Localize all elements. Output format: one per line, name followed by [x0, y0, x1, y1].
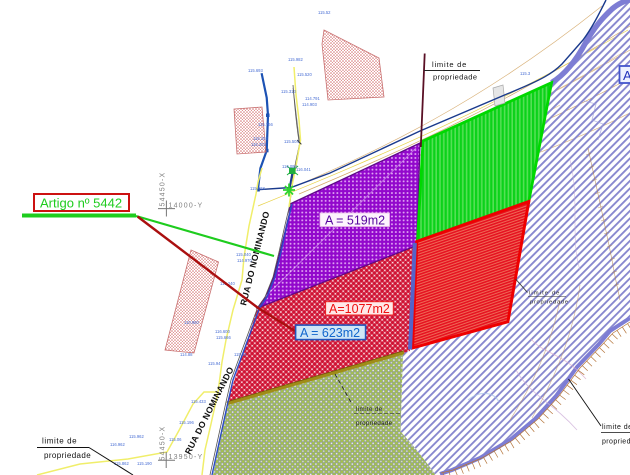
svg-text:115.313: 115.313 — [281, 89, 296, 94]
svg-text:Artigo nº 5442: Artigo nº 5442 — [40, 196, 122, 211]
svg-text:115.3: 115.3 — [520, 71, 531, 76]
svg-text:54450-X: 54450-X — [160, 426, 167, 461]
svg-text:115.23: 115.23 — [234, 352, 247, 357]
svg-text:115.196: 115.196 — [179, 420, 194, 425]
svg-text:116.962: 116.962 — [110, 442, 125, 447]
svg-text:limite de: limite de — [602, 424, 630, 431]
svg-text:114.791: 114.791 — [305, 96, 320, 101]
svg-text:13950-Y: 13950-Y — [169, 454, 204, 461]
svg-text:propriedade: propriedade — [356, 420, 393, 427]
svg-text:116.041: 116.041 — [296, 167, 311, 172]
svg-text:116.203: 116.203 — [251, 142, 266, 147]
svg-text:115.862: 115.862 — [114, 461, 129, 466]
svg-text:115.962: 115.962 — [129, 434, 144, 439]
svg-text:A = 519m2: A = 519m2 — [325, 214, 385, 228]
svg-text:114.88: 114.88 — [180, 352, 193, 357]
svg-text:116.600: 116.600 — [215, 329, 230, 334]
svg-text:115.94: 115.94 — [208, 361, 221, 366]
svg-text:A = 623m2: A = 623m2 — [300, 326, 360, 340]
svg-text:115.433: 115.433 — [191, 399, 206, 404]
svg-text:54450-X: 54450-X — [160, 172, 167, 207]
svg-text:115.868: 115.868 — [250, 186, 265, 191]
svg-text:110.960: 110.960 — [184, 320, 199, 325]
svg-text:115.766: 115.766 — [258, 122, 273, 127]
svg-text:115.693: 115.693 — [248, 68, 263, 73]
svg-text:116.202: 116.202 — [253, 136, 268, 141]
svg-text:propriedade: propriedade — [602, 439, 630, 446]
svg-text:limite de: limite de — [432, 60, 467, 69]
svg-text:limite de: limite de — [529, 291, 561, 297]
svg-text:115.190: 115.190 — [137, 461, 152, 466]
svg-text:14000-Y: 14000-Y — [169, 203, 204, 210]
svg-text:115.520: 115.520 — [297, 72, 312, 77]
svg-text:115.982: 115.982 — [288, 57, 303, 62]
svg-text:limite de: limite de — [42, 437, 77, 446]
svg-text:115.52: 115.52 — [318, 10, 331, 15]
svg-text:115.06: 115.06 — [169, 437, 182, 442]
svg-text:limite de: limite de — [356, 406, 383, 413]
svg-text:propriedade: propriedade — [433, 73, 477, 82]
svg-text:115.504: 115.504 — [284, 139, 299, 144]
svg-text:A: A — [623, 68, 630, 83]
svg-text:propriedade: propriedade — [44, 451, 91, 460]
svg-text:propriedade: propriedade — [530, 300, 569, 306]
svg-text:114.903: 114.903 — [302, 102, 317, 107]
svg-text:115.666: 115.666 — [216, 335, 231, 340]
svg-text:A=1077m2: A=1077m2 — [329, 302, 390, 316]
